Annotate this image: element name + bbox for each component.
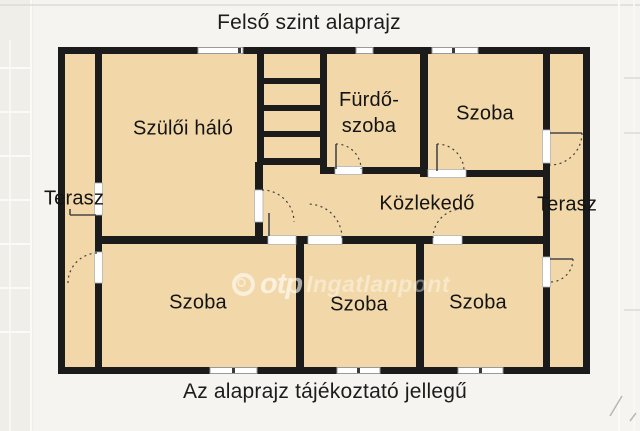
room-label-bathroom-line2: szoba <box>339 113 399 139</box>
room-label-bathroom-line1: Fürdő- <box>339 87 399 113</box>
room-label-top-right: Szoba <box>456 103 514 126</box>
room-label-terrace-left: Terasz <box>44 188 104 211</box>
room-label-bottom-left: Szoba <box>169 292 227 315</box>
footnote: Az alaprajz tájékoztató jellegű <box>183 380 467 404</box>
room-label-bathroom: Fürdő- szoba <box>339 87 399 139</box>
floor-plan-page: Felső szint alaprajz Szülői háló Fürdő- … <box>0 0 640 431</box>
page-title: Felső szint alaprajz <box>217 11 401 35</box>
room-label-bottom-right: Szoba <box>449 292 507 315</box>
room-label-hallway: Közlekedő <box>379 193 474 216</box>
room-label-bottom-middle: Szoba <box>330 294 388 317</box>
room-label-parents-bedroom: Szülői háló <box>133 118 233 141</box>
room-label-terrace-right: Terasz <box>537 194 597 217</box>
